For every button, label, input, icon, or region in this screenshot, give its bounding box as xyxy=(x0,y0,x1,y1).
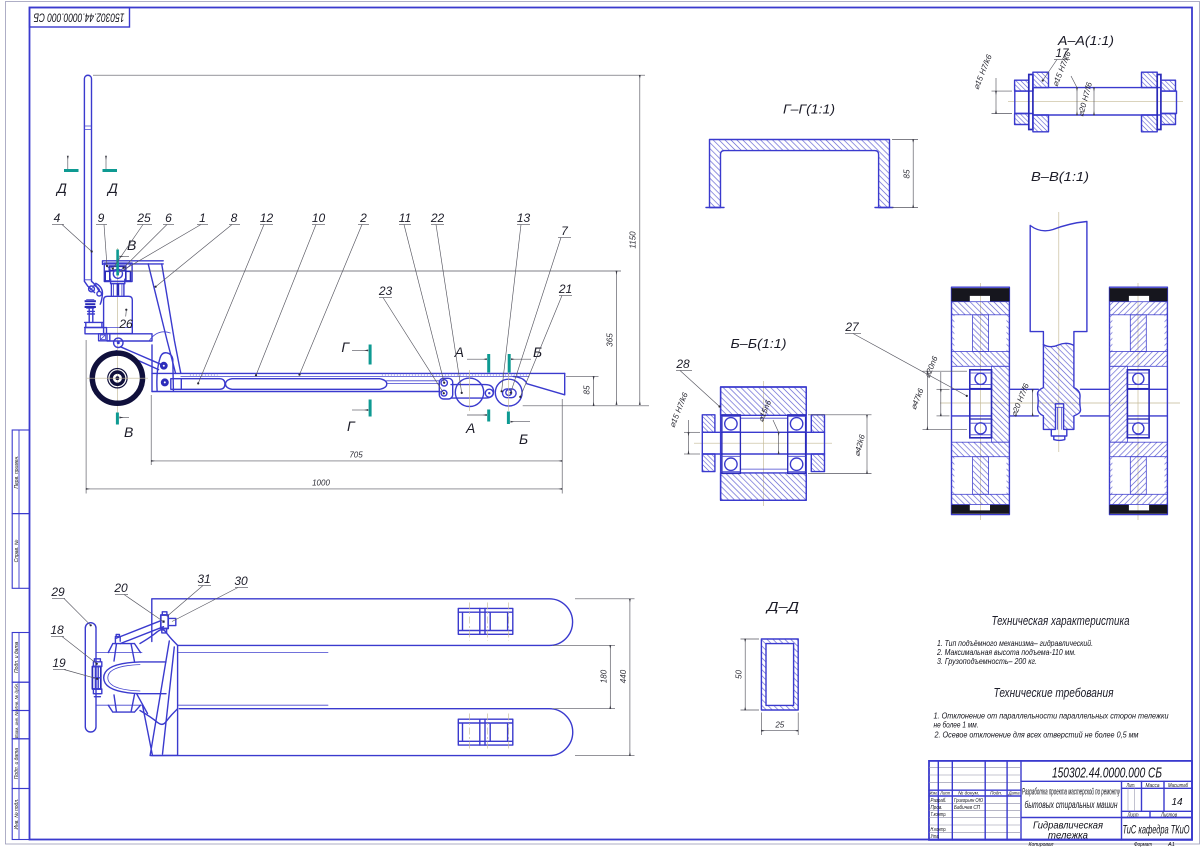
svg-text:30: 30 xyxy=(234,574,248,588)
svg-text:25: 25 xyxy=(774,721,784,730)
svg-text:Масса: Масса xyxy=(1146,783,1160,789)
svg-text:Подп.: Подп. xyxy=(990,791,1002,797)
svg-text:Взам. инв. №: Взам. инв. № xyxy=(14,711,19,738)
svg-text:25: 25 xyxy=(136,211,151,225)
svg-text:29: 29 xyxy=(50,585,65,599)
svg-text:2. Осевое отклонение для всех: 2. Осевое отклонение для всех отверстий … xyxy=(934,731,1139,740)
svg-text:Инв. № подл.: Инв. № подл. xyxy=(14,798,20,829)
svg-text:9: 9 xyxy=(98,211,105,225)
svg-text:А1: А1 xyxy=(1167,842,1175,847)
svg-text:Б–Б(1:1): Б–Б(1:1) xyxy=(731,336,787,351)
svg-text:Б: Б xyxy=(519,431,528,447)
svg-text:21: 21 xyxy=(558,282,572,296)
svg-text:Разработка проекта мастерской: Разработка проекта мастерской по ремонту xyxy=(1022,787,1120,797)
svg-text:Подп. и дата: Подп. и дата xyxy=(14,641,20,673)
svg-text:Н.контр.: Н.контр. xyxy=(931,827,947,833)
svg-text:Утв.: Утв. xyxy=(931,834,940,840)
svg-text:№ докум.: № докум. xyxy=(958,791,979,797)
svg-text:1. Тип подъёмного механизма– г: 1. Тип подъёмного механизма– гидравличес… xyxy=(937,639,1093,648)
svg-text:31: 31 xyxy=(197,572,210,586)
svg-text:Копировал: Копировал xyxy=(1029,842,1055,847)
svg-text:150302.44.0000.000 СБ: 150302.44.0000.000 СБ xyxy=(1052,765,1162,782)
svg-text:Лист: Лист xyxy=(1127,812,1139,818)
svg-text:Д: Д xyxy=(106,180,118,196)
svg-text:Григорьян ОЮ: Григорьян ОЮ xyxy=(954,798,983,804)
svg-text:2. Максимальная высота подъема: 2. Максимальная высота подъема-110 мм. xyxy=(936,648,1076,657)
svg-text:Лит.: Лит. xyxy=(1126,783,1136,789)
svg-text:23: 23 xyxy=(378,284,393,298)
svg-text:ТиС кафедра ТКиО: ТиС кафедра ТКиО xyxy=(1123,825,1190,837)
svg-text:18: 18 xyxy=(50,623,64,637)
svg-text:11: 11 xyxy=(399,211,411,225)
svg-text:Дата: Дата xyxy=(1008,791,1020,797)
svg-text:22: 22 xyxy=(430,211,445,225)
svg-text:А: А xyxy=(465,420,475,436)
svg-text:14: 14 xyxy=(1171,797,1183,808)
svg-text:Т.контр.: Т.контр. xyxy=(931,812,947,818)
svg-text:50: 50 xyxy=(735,670,744,679)
svg-text:Формат: Формат xyxy=(1134,842,1152,847)
svg-text:Технические требования: Технические требования xyxy=(994,685,1114,700)
svg-text:Подп. и дата: Подп. и дата xyxy=(14,748,20,780)
svg-text:не более 1 мм.: не более 1 мм. xyxy=(934,721,979,730)
svg-text:Г–Г(1:1): Г–Г(1:1) xyxy=(783,102,835,117)
svg-text:Инв. № дубл.: Инв. № дубл. xyxy=(14,683,19,710)
svg-text:85: 85 xyxy=(583,385,592,394)
svg-text:Д–Д: Д–Д xyxy=(764,599,799,614)
svg-text:705: 705 xyxy=(349,451,363,460)
svg-text:тележка: тележка xyxy=(1048,831,1089,842)
svg-text:Листов: Листов xyxy=(1160,812,1177,818)
svg-text:20: 20 xyxy=(113,581,128,595)
svg-text:Разраб.: Разраб. xyxy=(931,798,947,804)
svg-text:Масштаб: Масштаб xyxy=(1168,783,1189,789)
svg-text:1. Отклонение от параллельно: 1. Отклонение от параллельности параллел… xyxy=(934,711,1169,720)
svg-text:85: 85 xyxy=(903,169,912,178)
svg-text:28: 28 xyxy=(675,357,690,371)
svg-text:27: 27 xyxy=(844,320,860,334)
svg-text:Перв. примен.: Перв. примен. xyxy=(14,455,20,488)
svg-text:19: 19 xyxy=(52,656,66,670)
svg-text:Справ. №: Справ. № xyxy=(14,539,20,562)
svg-text:1000: 1000 xyxy=(312,479,330,488)
svg-text:Изм.: Изм. xyxy=(930,791,938,797)
svg-text:1150: 1150 xyxy=(629,231,638,249)
svg-text:2: 2 xyxy=(359,211,367,225)
svg-text:180: 180 xyxy=(600,669,609,683)
svg-text:Пров.: Пров. xyxy=(931,805,943,811)
svg-text:12: 12 xyxy=(260,211,274,225)
svg-text:440: 440 xyxy=(619,669,628,683)
svg-text:Техническая характеристика: Техническая характеристика xyxy=(992,613,1130,628)
svg-text:4: 4 xyxy=(54,211,61,225)
svg-text:365: 365 xyxy=(606,333,615,347)
svg-text:1: 1 xyxy=(199,211,206,225)
svg-text:бытовых стиральных машин: бытовых стиральных машин xyxy=(1025,799,1118,811)
svg-text:10: 10 xyxy=(312,211,326,225)
svg-text:Д: Д xyxy=(55,180,67,196)
svg-text:26: 26 xyxy=(118,317,133,331)
svg-text:Бабичев СП: Бабичев СП xyxy=(954,805,980,811)
svg-text:В: В xyxy=(124,424,133,440)
svg-text:3. Грузоподъемность– 200 кг.: 3. Грузоподъемность– 200 кг. xyxy=(937,657,1037,666)
svg-text:150302.44.0000.000 СБ: 150302.44.0000.000 СБ xyxy=(33,10,124,22)
svg-text:13: 13 xyxy=(517,211,531,225)
svg-text:6: 6 xyxy=(165,211,172,225)
svg-text:В: В xyxy=(127,237,136,253)
svg-text:В–В(1:1): В–В(1:1) xyxy=(1031,169,1089,184)
svg-text:8: 8 xyxy=(231,211,238,225)
svg-text:Лист: Лист xyxy=(939,791,950,797)
